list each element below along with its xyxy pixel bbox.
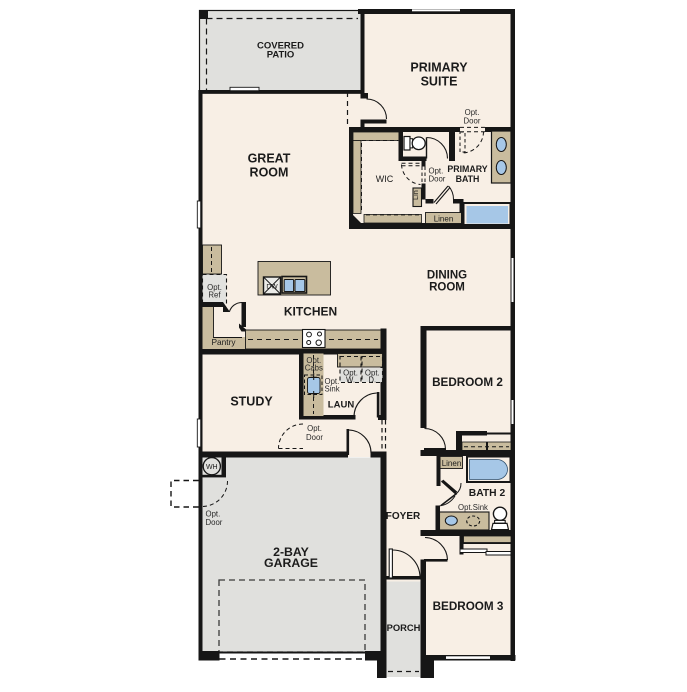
svg-text:WH: WH	[206, 464, 218, 471]
svg-text:Ref: Ref	[208, 290, 221, 299]
svg-text:KITCHEN: KITCHEN	[284, 305, 337, 319]
svg-text:BEDROOM 2: BEDROOM 2	[432, 376, 503, 389]
svg-text:LAUN: LAUN	[328, 400, 355, 411]
svg-text:STUDY: STUDY	[230, 395, 273, 409]
svg-text:PRIMARY: PRIMARY	[447, 164, 487, 174]
svg-text:Linen: Linen	[434, 214, 454, 223]
svg-text:ROOM: ROOM	[429, 282, 465, 294]
svg-text:BATH: BATH	[456, 174, 480, 184]
svg-text:Door: Door	[306, 433, 323, 442]
svg-text:PATIO: PATIO	[267, 49, 295, 60]
svg-text:BEDROOM 3: BEDROOM 3	[433, 600, 504, 613]
svg-text:PRIMARY: PRIMARY	[410, 61, 468, 75]
svg-text:Cabs: Cabs	[305, 363, 323, 372]
svg-text:GARAGE: GARAGE	[264, 556, 318, 570]
svg-text:W.: W.	[346, 375, 355, 384]
svg-text:ROOM: ROOM	[250, 166, 289, 180]
svg-text:D.: D.	[368, 375, 376, 384]
svg-text:GREAT: GREAT	[248, 152, 291, 166]
svg-text:PORCH: PORCH	[387, 622, 421, 633]
svg-text:FOYER: FOYER	[386, 511, 421, 522]
svg-text:Door: Door	[464, 117, 481, 126]
svg-text:Door: Door	[429, 174, 446, 183]
svg-text:Opt.: Opt.	[307, 424, 322, 433]
svg-text:DINING: DINING	[427, 270, 467, 282]
svg-text:BATH 2: BATH 2	[469, 488, 506, 499]
svg-text:Door: Door	[206, 518, 223, 527]
svg-text:Opt.Sink: Opt.Sink	[458, 503, 488, 512]
svg-text:Linen: Linen	[442, 459, 462, 468]
svg-text:DW: DW	[266, 284, 278, 291]
svg-text:Sink: Sink	[325, 385, 340, 394]
svg-text:WIC: WIC	[376, 174, 394, 184]
svg-text:Lin: Lin	[411, 190, 420, 200]
svg-text:SUITE: SUITE	[421, 75, 458, 89]
svg-text:Pantry: Pantry	[212, 337, 237, 347]
